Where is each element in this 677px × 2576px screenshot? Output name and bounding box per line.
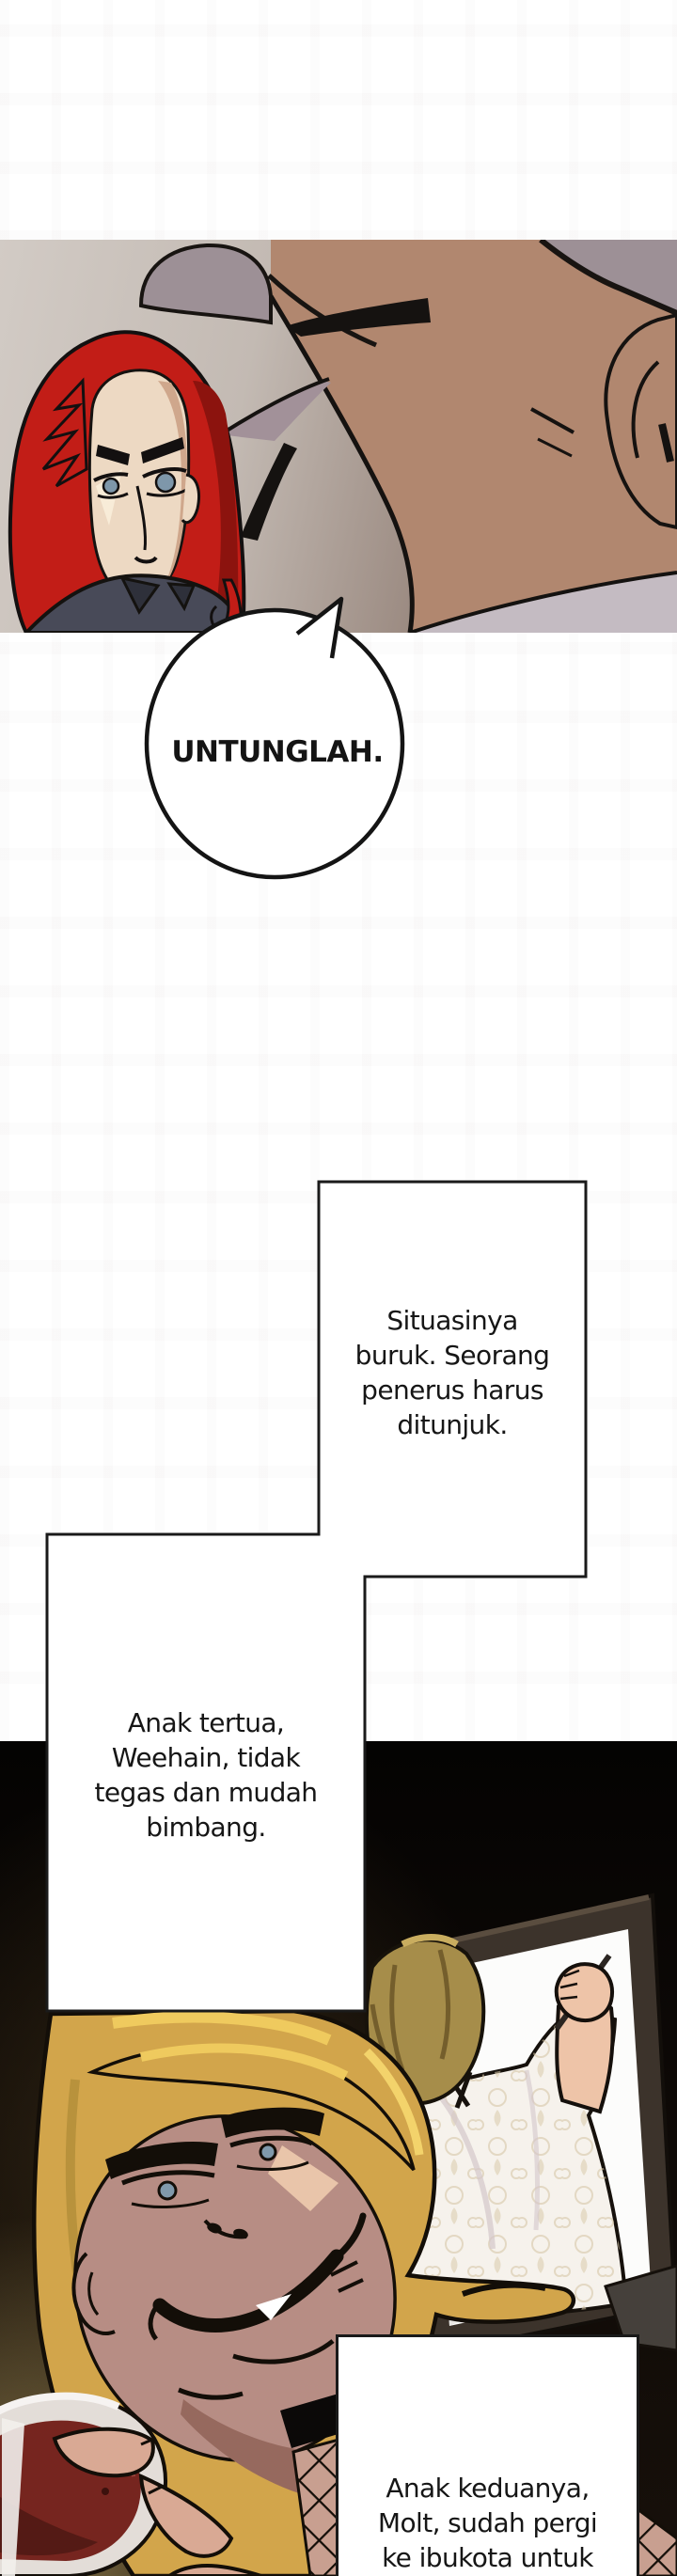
- panel-first-illustration: [0, 240, 677, 633]
- right-eye: [156, 473, 175, 492]
- narration-line: Anak tertua,: [128, 1705, 284, 1740]
- narration-line: bimbang.: [146, 1810, 265, 1845]
- narration-line: Weehain, tidak: [112, 1740, 300, 1775]
- left-eye: [159, 2182, 176, 2199]
- right-eye: [260, 2144, 276, 2160]
- panel-first: [0, 240, 677, 633]
- narration-box-second-text: Anak keduanya, Molt, sudah pergi ke ibuk…: [338, 2471, 637, 2575]
- left-eye: [103, 479, 118, 494]
- comic-page: UNTUNGLAH.: [0, 0, 677, 2576]
- narration-line: tegas dan mudah: [95, 1775, 318, 1810]
- narration-line: Situasinya: [386, 1303, 517, 1338]
- speech-bubble-text: UNTUNGLAH.: [130, 731, 425, 773]
- narration-line: ditunjuk.: [397, 1407, 507, 1442]
- narration-box-situation: Situasinya buruk. Seorang penerus harus …: [319, 1303, 586, 1442]
- narration-line: penerus harus: [361, 1373, 543, 1407]
- narration-line: Anak keduanya,: [386, 2471, 589, 2505]
- narration-box-second-son: Anak keduanya, Molt, sudah pergi ke ibuk…: [336, 2334, 639, 2576]
- narration-line: ke ibukota untuk: [382, 2540, 593, 2575]
- narration-line: buruk. Seorang: [355, 1338, 550, 1373]
- narration-box-eldest: Anak tertua, Weehain, tidak tegas dan mu…: [47, 1705, 365, 1845]
- narration-line: Molt, sudah pergi: [378, 2505, 597, 2540]
- narration-staircase-box: [38, 1170, 602, 2026]
